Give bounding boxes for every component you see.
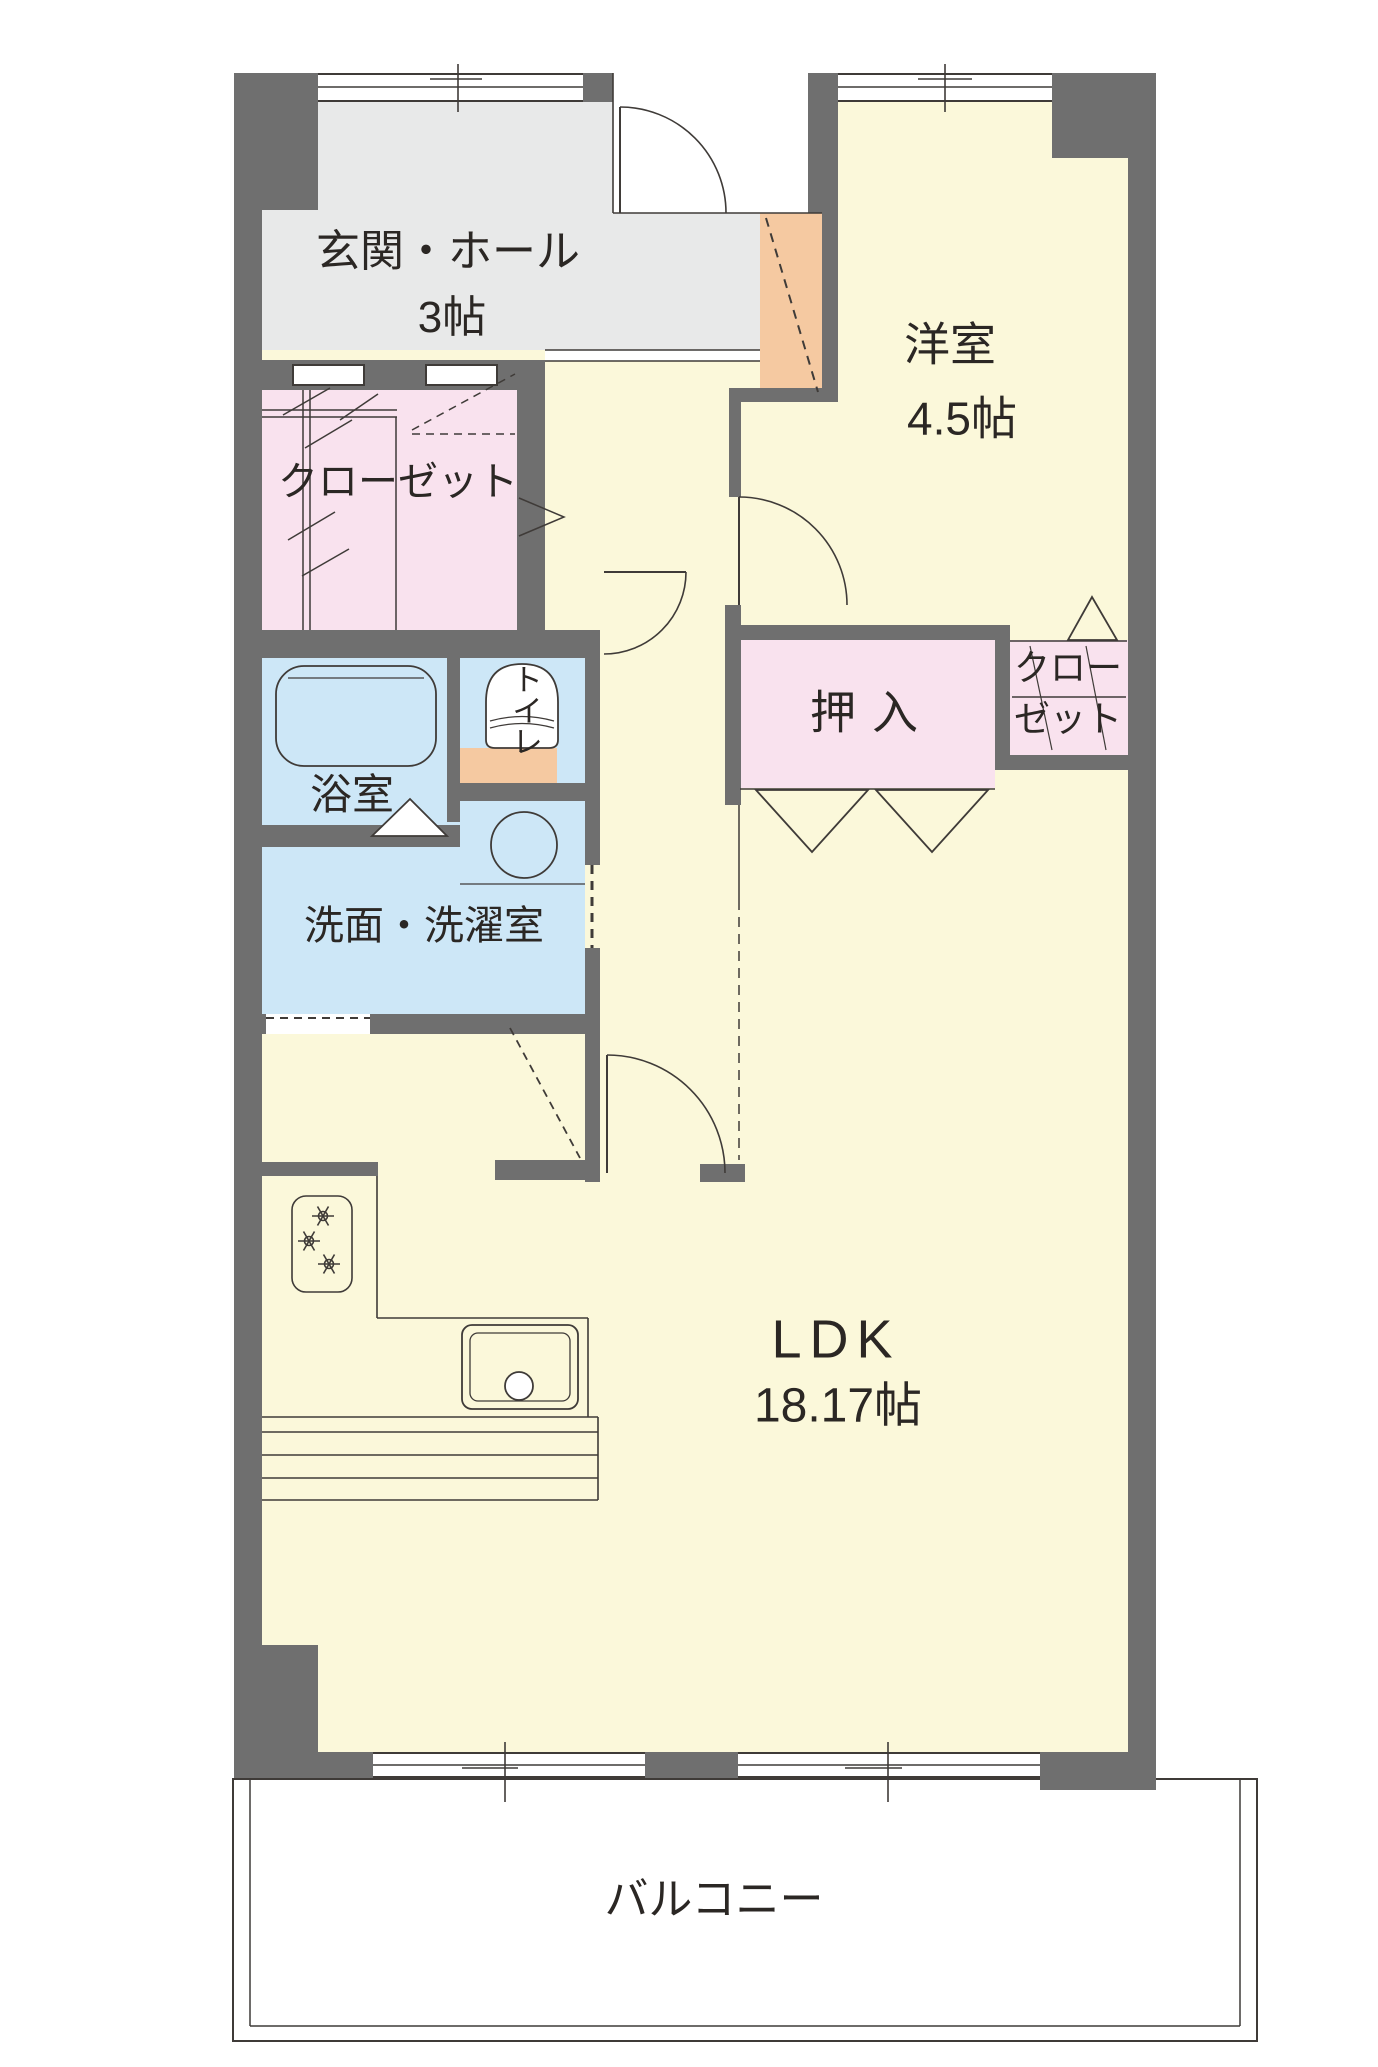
entrance-door-icon — [613, 73, 822, 213]
bathroom-label: 浴室 — [310, 772, 394, 818]
closet-left-label: クローゼット — [278, 460, 518, 504]
entrance-hall-label: 玄関・ホール — [316, 228, 580, 276]
washing-machine-icon — [460, 812, 585, 884]
floor-plan: 玄関・ホール 3帖 洋室 4.5帖 クローゼット 押入 クロー ゼット 浴室 ト… — [0, 0, 1378, 2067]
plan-linework — [0, 0, 1378, 2067]
western-room-label: 洋室 — [904, 320, 996, 371]
oshiire-folding-door-icon — [740, 789, 995, 852]
sink-icon — [462, 1325, 578, 1409]
toilet-label: トイレ — [507, 664, 541, 757]
shoe-cabinet-diagonal — [766, 218, 818, 392]
closet-right-label-line2: ゼット — [1014, 699, 1122, 739]
hall-step-lines — [545, 350, 760, 361]
kitchen-counter — [262, 1176, 598, 1500]
western-room-size: 4.5帖 — [907, 394, 1017, 445]
oshiire-label: 押入 — [810, 688, 934, 739]
stove-icon — [292, 1196, 352, 1292]
entrance-hall-size: 3帖 — [418, 294, 486, 342]
ldk-door-icon — [607, 1055, 725, 1173]
closet-right-label-line1: クロー — [1014, 648, 1122, 688]
toilet-door-icon — [604, 572, 686, 654]
ldk-size: 18.17帖 — [754, 1381, 922, 1434]
storage-diagonal — [510, 1028, 580, 1158]
ldk-label: LDK — [771, 1310, 900, 1369]
western-room-door-icon — [739, 497, 847, 605]
balcony-label: バルコニー — [604, 1876, 823, 1924]
bathtub-icon — [276, 666, 436, 766]
washroom-label: 洗面・洗濯室 — [304, 904, 544, 948]
